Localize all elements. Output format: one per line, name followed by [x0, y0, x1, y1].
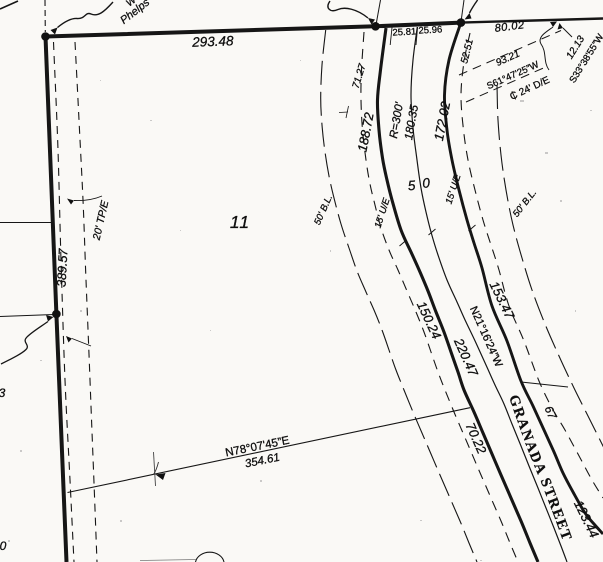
svg-text:25.96: 25.96 — [418, 24, 442, 36]
svg-text:293.48: 293.48 — [191, 33, 234, 49]
svg-text:11: 11 — [230, 212, 250, 232]
svg-text:389.57: 389.57 — [55, 247, 71, 287]
svg-text:0: 0 — [0, 539, 7, 553]
svg-text:3: 3 — [0, 386, 6, 400]
svg-text:25.81: 25.81 — [392, 26, 416, 38]
